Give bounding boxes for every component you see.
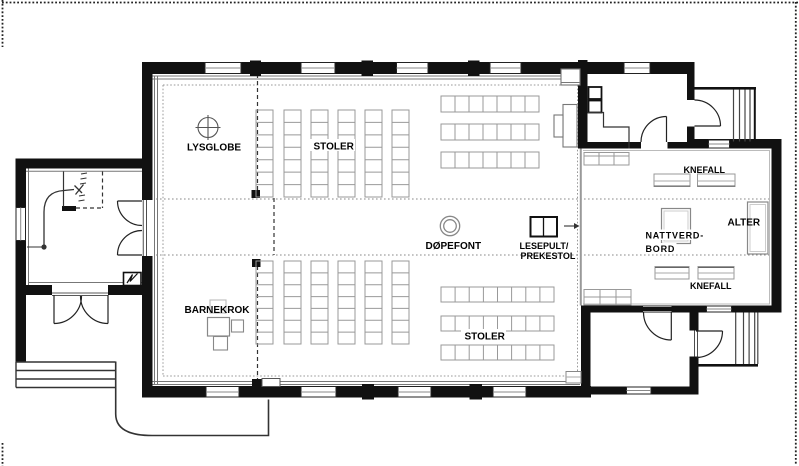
svg-text:NATTVERD-: NATTVERD- xyxy=(646,231,705,241)
svg-text:DØPEFONT: DØPEFONT xyxy=(426,241,482,252)
svg-text:STOLER: STOLER xyxy=(314,142,355,153)
svg-text:LYSGLOBE: LYSGLOBE xyxy=(187,143,241,154)
svg-text:KNEFALL: KNEFALL xyxy=(684,165,726,175)
svg-text:ALTER: ALTER xyxy=(728,218,761,229)
svg-text:STOLER: STOLER xyxy=(465,332,506,343)
svg-text:PREKESTOL: PREKESTOL xyxy=(521,251,576,261)
svg-text:LESEPULT/: LESEPULT/ xyxy=(520,241,569,251)
svg-text:BORD: BORD xyxy=(646,244,676,254)
svg-text:BARNEKROK: BARNEKROK xyxy=(185,305,251,316)
svg-text:KNEFALL: KNEFALL xyxy=(690,281,732,291)
